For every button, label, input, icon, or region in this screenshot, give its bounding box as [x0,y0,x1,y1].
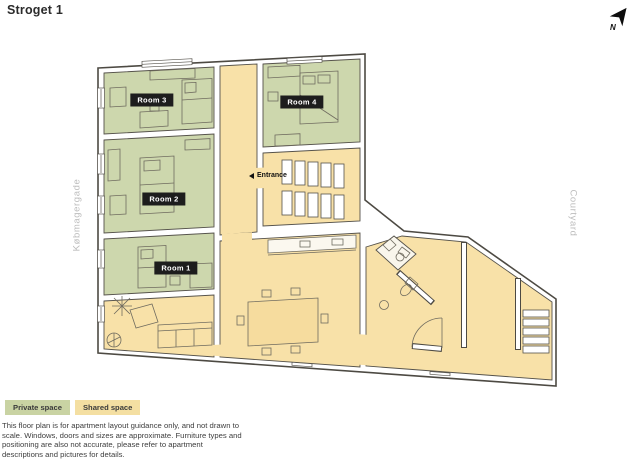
floor-plan-page: Stroget 1 N [0,0,640,464]
disclaimer-text: This floor plan is for apartment layout … [2,421,242,460]
entrance-label: Entrance [249,172,287,179]
dining-wing-opening [357,334,369,366]
room4-label: Room 4 [280,96,323,109]
living-corridor-opening [212,345,222,357]
room1-label: Room 1 [154,262,197,275]
legend: Private space Shared space [5,400,140,415]
legend-private-space: Private space [5,400,70,415]
plant-icon [112,296,132,316]
entrance-arrow-icon [249,173,254,179]
hallway-floor [220,64,257,235]
room3-label: Room 3 [130,94,173,107]
back-staircase-icon [523,310,549,353]
hall-dining-opening [222,232,252,244]
street-label-kobmagergade: Købmagergade [72,179,83,252]
entrance-text: Entrance [257,172,287,179]
legend-shared-space: Shared space [75,400,140,415]
floor-plan-svg [0,0,640,464]
street-label-courtyard: Courtyard [568,189,579,236]
room2-label: Room 2 [142,193,185,206]
